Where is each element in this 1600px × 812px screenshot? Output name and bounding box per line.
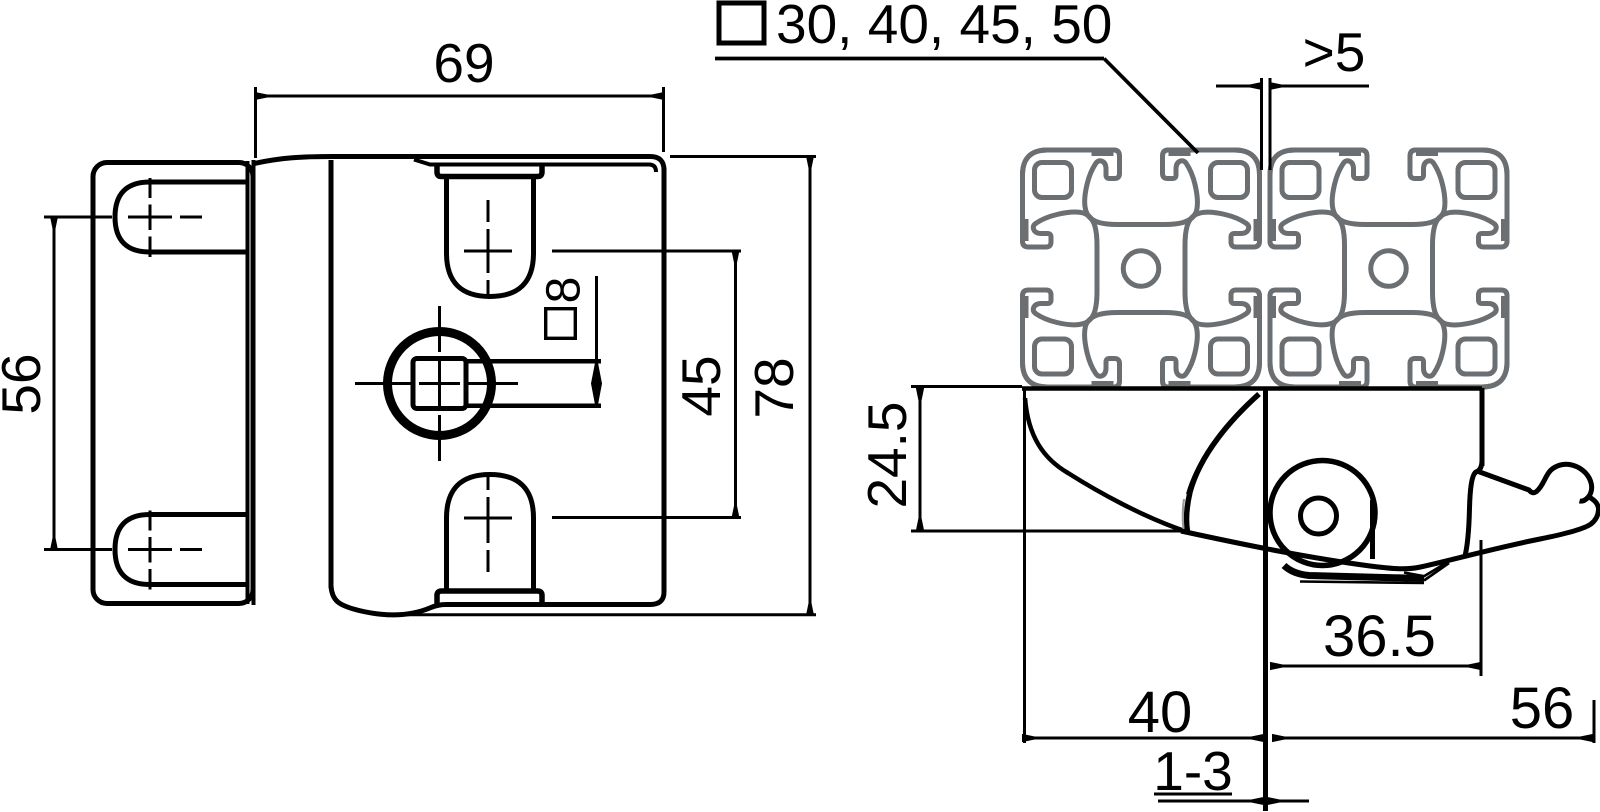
svg-text:1-3: 1-3 (1153, 740, 1233, 802)
svg-text:30, 40, 45, 50: 30, 40, 45, 50 (776, 0, 1112, 55)
svg-text:>5: >5 (1303, 21, 1366, 83)
svg-text:78: 78 (743, 357, 805, 418)
svg-text:45: 45 (670, 355, 732, 416)
svg-text:8: 8 (538, 277, 591, 304)
svg-text:69: 69 (433, 32, 494, 94)
svg-text:24.5: 24.5 (856, 401, 918, 508)
svg-text:40: 40 (1128, 680, 1193, 745)
svg-text:36.5: 36.5 (1323, 604, 1436, 669)
svg-text:56: 56 (1510, 676, 1575, 741)
svg-text:56: 56 (0, 353, 52, 414)
